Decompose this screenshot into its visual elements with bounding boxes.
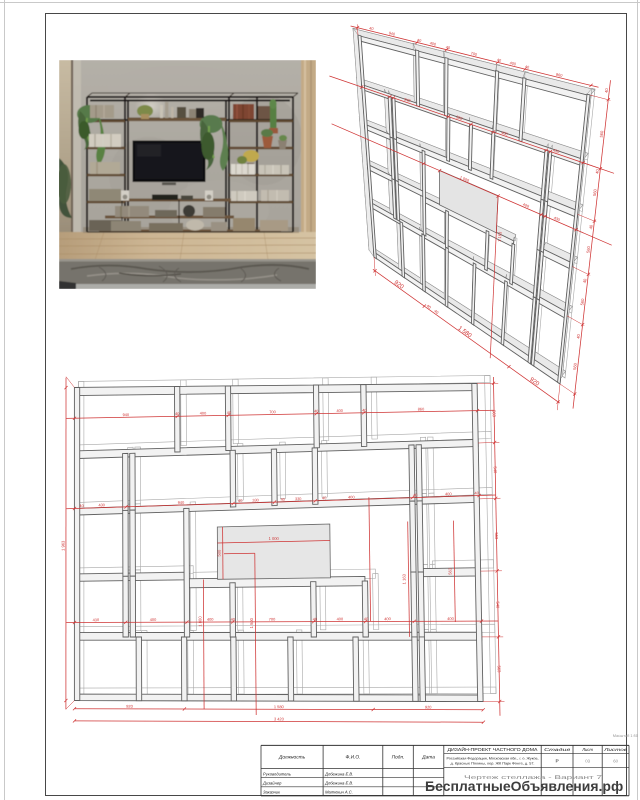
svg-text:560: 560 [572,362,578,370]
svg-text:920: 920 [126,704,133,709]
svg-text:40: 40 [582,278,588,284]
svg-text:1 580: 1 580 [457,325,474,340]
svg-text:400: 400 [447,616,454,621]
svg-text:400: 400 [522,202,531,209]
svg-text:Лист: Лист [581,747,593,752]
svg-text:Матюхин А.С.: Матюхин А.С. [325,790,353,795]
svg-text:540: 540 [493,466,498,474]
svg-text:Руководитель: Руководитель [263,771,291,776]
svg-text:Добежина Е.В.: Добежина Е.В. [324,781,353,786]
svg-text:400: 400 [150,617,157,622]
svg-text:Дата: Дата [421,755,435,761]
svg-text:40: 40 [322,495,327,500]
svg-text:400: 400 [445,491,452,496]
svg-text:40: 40 [576,333,582,339]
svg-text:400: 400 [337,616,344,621]
svg-text:400: 400 [207,617,214,622]
svg-text:1 163: 1 163 [497,231,503,242]
svg-text:500: 500 [217,549,222,557]
svg-text:40: 40 [313,616,318,621]
svg-text:560: 560 [585,245,591,253]
svg-text:Подп.: Подп. [392,755,405,761]
svg-text:Масштаб 1:50: Масштаб 1:50 [613,733,639,738]
svg-text:Ф.И.О.: Ф.И.О. [345,755,360,761]
svg-text:920: 920 [425,704,432,709]
svg-text:920: 920 [528,376,541,388]
svg-text:Российская Федерация, Московск: Российская Федерация, Московская обл., г… [447,757,539,761]
svg-text:Р: Р [555,759,558,765]
svg-text:Добежина Е.В.: Добежина Е.В. [324,771,353,776]
svg-text:940: 940 [178,500,185,505]
svg-text:700: 700 [269,409,276,414]
svg-text:540: 540 [495,601,500,609]
svg-text:560: 560 [579,298,585,306]
svg-text:920: 920 [393,279,406,291]
svg-text:40: 40 [604,87,610,93]
svg-text:700: 700 [269,617,276,622]
svg-text:563: 563 [497,666,502,674]
svg-text:Должность: Должность [278,755,306,761]
svg-text:563: 563 [494,532,499,540]
svg-text:563: 563 [492,410,497,418]
svg-text:940: 940 [123,412,130,417]
svg-text:430: 430 [93,617,100,622]
svg-text:400: 400 [200,411,207,416]
svg-text:330: 330 [252,497,259,502]
svg-text:03: 03 [585,759,590,764]
svg-text:1 963: 1 963 [61,540,66,551]
svg-text:3 420: 3 420 [274,716,285,721]
svg-text:400: 400 [348,494,355,499]
svg-text:1 580: 1 580 [274,704,285,709]
svg-text:400: 400 [384,616,391,621]
svg-text:860: 860 [418,406,425,411]
svg-text:1 500: 1 500 [249,617,254,628]
svg-text:1 163: 1 163 [402,573,407,584]
svg-text:1 800: 1 800 [197,616,202,627]
svg-text:Заказчик: Заказчик [263,790,281,795]
svg-text:Листов: Листов [603,747,629,752]
svg-text:40: 40 [594,168,600,174]
svg-text:330: 330 [295,496,302,501]
svg-text:560: 560 [599,130,605,138]
svg-text:Дизайнер: Дизайнер [262,781,282,786]
svg-text:430: 430 [553,215,562,222]
svg-text:560: 560 [592,188,598,196]
svg-text:40: 40 [588,224,594,230]
svg-text:40: 40 [426,303,433,310]
svg-text:40: 40 [433,308,440,315]
svg-text:Стадия: Стадия [544,747,571,752]
svg-text:430: 430 [98,502,105,507]
svg-text:1 000: 1 000 [269,536,280,541]
svg-text:60: 60 [613,759,618,764]
svg-text:563: 563 [448,567,453,575]
svg-text:40: 40 [281,497,286,502]
svg-text:40: 40 [238,498,243,503]
svg-text:400: 400 [336,408,343,413]
svg-text:ДИЗАЙН-ПРОЕКТ ЧАСТНОГО ДОМА: ДИЗАЙН-ПРОЕКТ ЧАСТНОГО ДОМА [448,747,538,752]
svg-text:д. Красные Поляны, пер. ЖК Пар: д. Красные Поляны, пер. ЖК Парк Фонте, д… [451,762,535,766]
